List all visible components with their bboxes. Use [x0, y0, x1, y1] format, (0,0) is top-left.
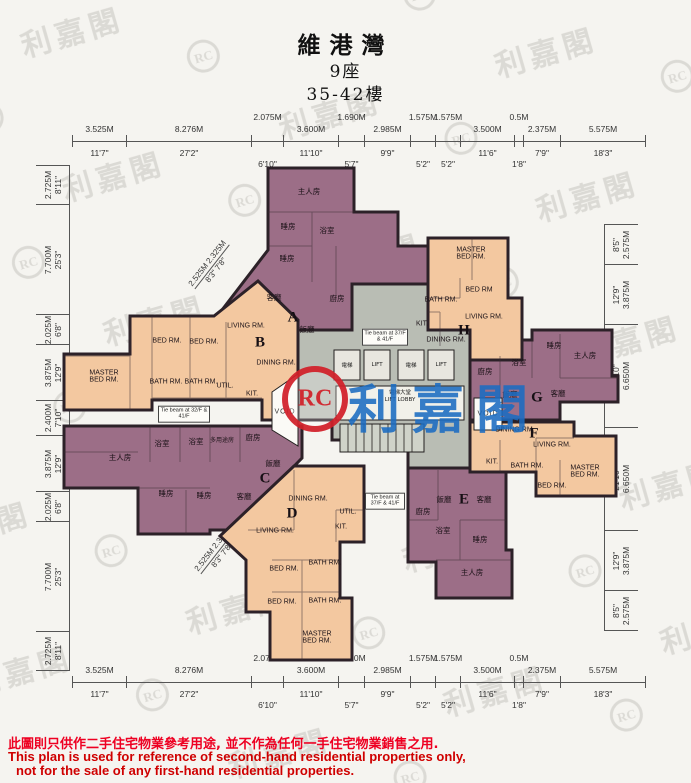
room-label: 浴室 [512, 359, 527, 367]
room-label: MASTER BED RM. [451, 247, 491, 262]
room-label: BATH RM. [309, 597, 342, 604]
unit-letter-E: E [459, 492, 469, 509]
room-label: 客廳 [237, 493, 252, 501]
unit-letter-A: A [288, 310, 299, 327]
room-label: 睡房 [280, 255, 295, 263]
room-label: 飯廳 [266, 460, 281, 468]
room-label: 主人房 [574, 352, 597, 360]
floor-plan-page: 利嘉閣 RC 維港灣 9座 35-42樓 3.525M11'7" 8.276M2… [0, 0, 691, 783]
tie-beam-note: Tie beam at 37/F & 41/F [365, 493, 405, 510]
room-label: 浴室 [320, 227, 335, 235]
room-label: 客廳 [477, 496, 492, 504]
room-label: 睡房 [159, 490, 174, 498]
unit-letter-C: C [260, 471, 271, 488]
room-label: BED RM. [189, 338, 218, 345]
room-label: BATH RM. [185, 378, 218, 385]
room-label: LIVING RM. [227, 322, 265, 329]
room-label: BATH RM. [425, 296, 458, 303]
room-label: 浴室 [436, 527, 451, 535]
room-label: 睡房 [473, 536, 488, 544]
disclaimer-en-line1: This plan is used for reference of secon… [8, 749, 466, 764]
room-label: 主人房 [298, 188, 321, 196]
room-label: 飯廳 [300, 326, 315, 334]
room-label: DINING RM. [256, 359, 295, 366]
room-label: UTIL. [339, 508, 356, 515]
unit-letter-H: H [458, 323, 470, 340]
room-label: KIT. [416, 320, 428, 327]
room-label: 廚房 [246, 434, 261, 442]
room-label: BATH RM. [309, 559, 342, 566]
ricacorp-brand-watermark: 利嘉閣 [348, 368, 558, 443]
ricacorp-logo-icon: RC [282, 366, 348, 432]
room-label: BED RM. [537, 482, 566, 489]
room-label: 客廳 [267, 294, 282, 302]
tie-beam-note: Tie beam at 37/F & 41/F [362, 329, 408, 346]
room-label: 睡房 [547, 342, 562, 350]
room-label: LIVING RM. [465, 313, 503, 320]
room-label: MASTER BED RM. [565, 465, 605, 480]
room-label: LIVING RM. [256, 527, 294, 534]
room-label: 浴室 [155, 440, 170, 448]
room-label: BED RM. [152, 337, 181, 344]
room-label: BED RM. [267, 598, 296, 605]
room-label: 飯廳 [437, 496, 452, 504]
tie-beam-note: Tie beam at 32/F & 41/F [158, 406, 210, 423]
room-label: 睡房 [281, 223, 296, 231]
room-label: UTIL. [216, 382, 233, 389]
unit-letter-D: D [287, 506, 298, 523]
room-label: BATH RM. [511, 462, 544, 469]
room-label: MASTER BED RM. [84, 370, 124, 385]
room-label: 浴室 [189, 438, 204, 446]
disclaimer-en-line2: not for the sale of any first-hand resid… [16, 763, 354, 778]
room-label: BED RM. [269, 565, 298, 572]
unit-letter-B: B [255, 335, 265, 352]
room-label: KIT. [335, 523, 347, 530]
room-label: DINING RM. [288, 495, 327, 502]
room-label: BED RM [465, 286, 492, 293]
room-label: BATH RM. [150, 378, 183, 385]
room-label: 睡房 [197, 492, 212, 500]
room-label: KIT. [486, 458, 498, 465]
room-label: 廚房 [416, 508, 431, 516]
room-label: 主人房 [461, 569, 484, 577]
room-label: 主人房 [109, 454, 132, 462]
room-label: KIT. [246, 390, 258, 397]
room-label: 多用途房 [210, 438, 234, 444]
room-label: MASTER BED RM. [297, 631, 337, 646]
room-label: 廚房 [330, 295, 345, 303]
